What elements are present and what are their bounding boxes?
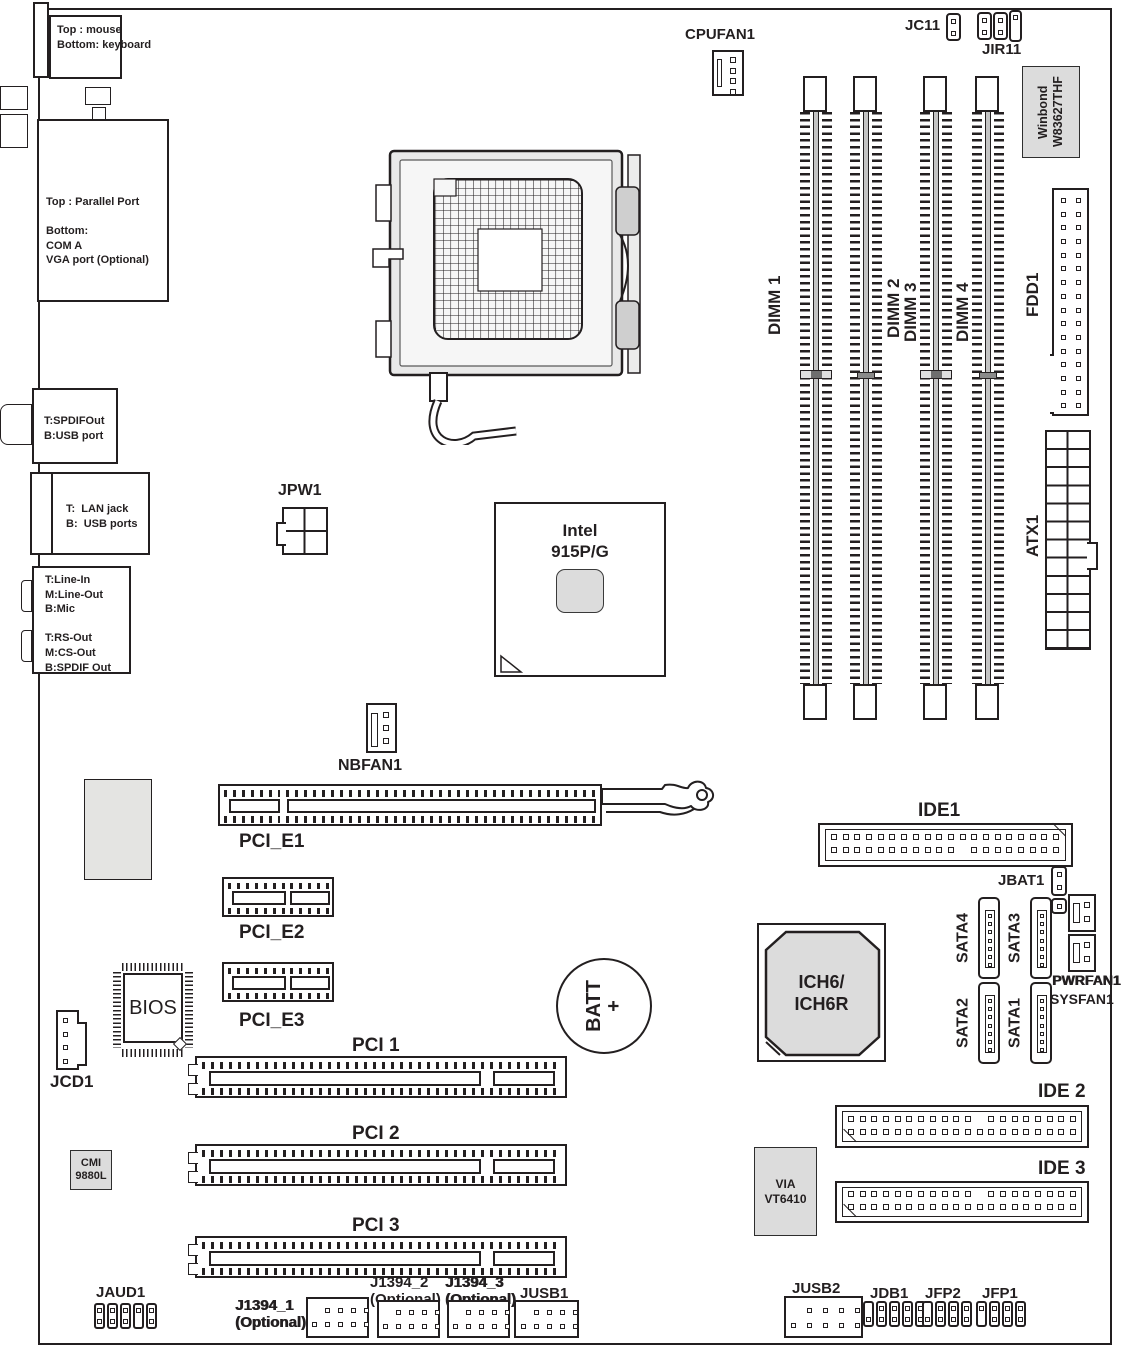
pci-slot-1 [195, 1056, 567, 1098]
pin [1030, 834, 1036, 840]
pin [995, 834, 1001, 840]
pin [992, 1317, 997, 1322]
mouse-keyboard-label-box: Top : mouse Bottom: keyboard [49, 15, 122, 79]
pwrfan1-connector [1068, 894, 1096, 932]
pin [1040, 939, 1044, 943]
audio-jack-shape [21, 630, 32, 662]
pin [951, 1306, 956, 1311]
pin [1061, 321, 1066, 326]
pin [948, 834, 954, 840]
spdif-usb-label-box: T:SPDIFOut B:USB port [32, 388, 118, 464]
serial-port-shape [0, 86, 28, 110]
pin [351, 1308, 356, 1313]
nbfan1-label: NBFAN1 [338, 757, 402, 776]
pin [730, 68, 736, 74]
pin [136, 1308, 141, 1313]
spdif-port-shape [0, 404, 32, 445]
pin [977, 1129, 983, 1135]
j1394-1-connector [306, 1297, 369, 1338]
pin [1030, 847, 1036, 853]
audio-jack-shape [21, 580, 32, 612]
pin [918, 1191, 924, 1197]
pin [848, 1191, 854, 1197]
pin [409, 1310, 414, 1315]
pin [1084, 902, 1090, 908]
pin [1000, 1129, 1006, 1135]
pin [1058, 1191, 1064, 1197]
pin [988, 1204, 994, 1210]
jumper-unit [120, 1303, 131, 1329]
pin [1047, 1204, 1053, 1210]
sata1-label: SATA1 [1006, 983, 1026, 1063]
pin [953, 1129, 959, 1135]
jpw1-label: JPW1 [278, 482, 322, 501]
pin [1040, 914, 1044, 918]
pin [123, 1308, 128, 1313]
pin [854, 834, 860, 840]
pin [1076, 212, 1081, 217]
northbridge-die [556, 569, 604, 613]
via-raid-chip: VIA VT6410 [754, 1147, 817, 1236]
pin [351, 1322, 356, 1327]
jpw1-connector [282, 507, 328, 555]
pin [1053, 847, 1059, 853]
pin [977, 1204, 983, 1210]
pin [848, 1116, 854, 1122]
pin [855, 1323, 860, 1328]
pin [521, 1324, 526, 1329]
cpu-socket [368, 143, 655, 445]
pin [971, 847, 977, 853]
pin [889, 834, 895, 840]
pin [149, 1308, 154, 1313]
pin [860, 1191, 866, 1197]
pin [854, 847, 860, 853]
pin [988, 1015, 992, 1019]
pin [1070, 1204, 1076, 1210]
pin [883, 1204, 889, 1210]
pin [123, 1319, 128, 1324]
pin [1076, 349, 1081, 354]
winbond-superio-chip: Winbond W83627THF [1022, 66, 1080, 158]
pin [871, 1204, 877, 1210]
pin [942, 1116, 948, 1122]
ide3-label: IDE 3 [1038, 1158, 1086, 1180]
pin [547, 1324, 552, 1329]
pin [383, 712, 389, 718]
cpufan1-connector [712, 50, 744, 96]
pin [1040, 955, 1044, 959]
pin [1076, 403, 1081, 408]
pin [843, 847, 849, 853]
pin [839, 1323, 844, 1328]
ide1-pins [831, 834, 1059, 853]
pin [1040, 922, 1044, 926]
pin [953, 1116, 959, 1122]
pin [364, 1322, 369, 1327]
pin [1035, 1116, 1041, 1122]
pin [1076, 376, 1081, 381]
pin [895, 1191, 901, 1197]
pin [906, 1116, 912, 1122]
pin [1076, 335, 1081, 340]
jbat1-label: JBAT1 [998, 872, 1044, 890]
pin [1023, 1204, 1029, 1210]
dimm1-label: DIMM 1 [764, 248, 786, 363]
ps2-stack-connector [33, 2, 49, 78]
pin [1070, 1116, 1076, 1122]
pin [1023, 1129, 1029, 1135]
jumper-unit [146, 1303, 157, 1329]
pin [1047, 1191, 1053, 1197]
pin [878, 847, 884, 853]
pin [860, 1204, 866, 1210]
pin [871, 1129, 877, 1135]
pin [479, 1310, 484, 1315]
pin [1023, 1191, 1029, 1197]
pin [1018, 1306, 1023, 1311]
jcd1-tab [77, 1022, 87, 1066]
pin [325, 1322, 330, 1327]
ide2-connector [835, 1105, 1089, 1148]
jumper-unit [94, 1303, 105, 1329]
pin [435, 1324, 440, 1329]
jumper-unit [863, 1301, 874, 1327]
pin [1040, 1015, 1044, 1019]
atx1-latch-tab [1087, 542, 1098, 570]
pin [1006, 847, 1012, 853]
pin [1076, 390, 1081, 395]
pin [1061, 403, 1066, 408]
pin [964, 1317, 969, 1322]
pin [1018, 834, 1024, 840]
pin [560, 1310, 565, 1315]
pin [942, 1129, 948, 1135]
dimm4-label: DIMM 4 [953, 256, 973, 368]
audio-label-box: T:Line-In M:Line-Out B:Mic T:RS-Out M:CS… [32, 566, 131, 674]
pin [901, 834, 907, 840]
pin [942, 1191, 948, 1197]
pin [988, 955, 992, 959]
pin [988, 1048, 992, 1052]
pin [396, 1324, 401, 1329]
pin [936, 834, 942, 840]
pin [791, 1323, 796, 1328]
pin [338, 1322, 343, 1327]
nbfan1-connector [366, 703, 397, 753]
pin [866, 1317, 871, 1322]
pcie1-label: PCI_E1 [239, 831, 304, 853]
pin [422, 1310, 427, 1315]
cpufan1-label: CPUFAN1 [685, 26, 755, 44]
pin [843, 834, 849, 840]
pin [807, 1308, 812, 1313]
jumper-unit [1015, 1301, 1026, 1327]
jumper-unit [1002, 1301, 1013, 1327]
pin [964, 1306, 969, 1311]
jbat1-pin3 [1051, 898, 1067, 914]
pin [383, 725, 389, 731]
pin [988, 1032, 992, 1036]
pin [1076, 239, 1081, 244]
pin [988, 939, 992, 943]
pin [730, 78, 736, 84]
pin [948, 847, 954, 853]
pin [860, 1129, 866, 1135]
jumper-unit [922, 1301, 933, 1327]
pin [435, 1310, 440, 1315]
pin [988, 963, 992, 967]
fan-key-tab [371, 713, 378, 747]
pin [1076, 294, 1081, 299]
pin [983, 834, 989, 840]
pin [149, 1319, 154, 1324]
pin [1000, 1204, 1006, 1210]
pin [1023, 1116, 1029, 1122]
jc11-label: JC11 [905, 17, 940, 35]
pin [1018, 847, 1024, 853]
fan-key-tab [717, 59, 722, 87]
pin [312, 1322, 317, 1327]
pin [925, 1317, 930, 1322]
pin [1076, 308, 1081, 313]
pin [338, 1308, 343, 1313]
jcd1-label: JCD1 [50, 1072, 93, 1092]
pin [988, 1040, 992, 1044]
jc11-jumper [946, 13, 961, 41]
pin [1084, 916, 1090, 922]
jumper-unit [133, 1303, 144, 1329]
pin [1040, 1024, 1044, 1028]
pin [1040, 930, 1044, 934]
pin [1061, 362, 1066, 367]
pin [988, 999, 992, 1003]
pin [1061, 308, 1066, 313]
cpufan1-pins [730, 57, 736, 95]
pin [1012, 1204, 1018, 1210]
pin [839, 1308, 844, 1313]
jir11-label: JIR11 [982, 41, 1021, 59]
motherboard-layout-diagram: Top : mouse Bottom: keyboard Top : Paral… [0, 0, 1125, 1351]
pin [1058, 1204, 1064, 1210]
dimm-slot-2 [850, 76, 882, 720]
pin [1047, 1129, 1053, 1135]
pin [895, 1204, 901, 1210]
pin [479, 1324, 484, 1329]
pin [560, 1324, 565, 1329]
audio-label: T:Line-In M:Line-Out B:Mic T:RS-Out M:CS… [34, 568, 129, 675]
pin [913, 847, 919, 853]
atx1-power-connector [1045, 430, 1091, 650]
bios-chip: BIOS [113, 963, 193, 1057]
pin [1040, 999, 1044, 1003]
ide1-connector [818, 823, 1073, 867]
pin [1035, 1129, 1041, 1135]
pin [960, 834, 966, 840]
pin [906, 1204, 912, 1210]
lan-port-shape [30, 472, 53, 555]
pin [883, 1191, 889, 1197]
pcie2-label: PCI_E2 [239, 922, 304, 944]
pin [918, 1204, 924, 1210]
pin [466, 1324, 471, 1329]
jir11-jumper-3 [1009, 10, 1022, 42]
pin [953, 1204, 959, 1210]
jusb2-connector [784, 1296, 863, 1338]
pin [860, 1116, 866, 1122]
pcie-x1-slot-2 [222, 877, 334, 917]
pin [1040, 963, 1044, 967]
pin [988, 947, 992, 951]
pin [988, 1129, 994, 1135]
pin [925, 847, 931, 853]
pin [1076, 253, 1081, 258]
pin [63, 1045, 68, 1050]
pin [1061, 212, 1066, 217]
pin [878, 834, 884, 840]
pin [1040, 1007, 1044, 1011]
pin [1012, 1129, 1018, 1135]
pcie-x16-slot [218, 784, 602, 826]
sata1-connector [1030, 982, 1052, 1064]
southbridge-label: ICH6/ ICH6R [759, 971, 884, 1015]
pin [97, 1308, 102, 1313]
pin [879, 1306, 884, 1311]
pin [1076, 225, 1081, 230]
pin [930, 1191, 936, 1197]
ide2-label: IDE 2 [1038, 1081, 1086, 1103]
pin [1076, 362, 1081, 367]
pin [965, 1204, 971, 1210]
pin [1061, 239, 1066, 244]
pin [63, 1059, 68, 1064]
pin [1061, 266, 1066, 271]
battery-label: BATT + [584, 980, 624, 1032]
cmos-battery: BATT + [556, 958, 652, 1054]
pin [906, 1129, 912, 1135]
pin [63, 1018, 68, 1023]
pwrfan1-label: PWRFAN1 [1052, 972, 1120, 989]
j1394-1-label: J1394_1 (Optional) [235, 1297, 306, 1331]
pin [1041, 834, 1047, 840]
parallel-com-vga-label-box: Top : Parallel Port Bottom: COM A VGA po… [37, 119, 169, 302]
pin [1058, 1116, 1064, 1122]
pin [1012, 1116, 1018, 1122]
pin [364, 1308, 369, 1313]
sata4-connector [978, 897, 1000, 979]
pin [883, 1116, 889, 1122]
pin [807, 1323, 812, 1328]
northbridge-label: Intel 915P/G [496, 520, 664, 562]
jfp1-header [976, 1301, 1026, 1327]
pin [988, 1116, 994, 1122]
ide1-label: IDE1 [918, 800, 960, 822]
pin [422, 1324, 427, 1329]
j1394-2-connector [377, 1300, 440, 1338]
jcd1-pins [63, 1018, 68, 1064]
ide3-connector [835, 1181, 1089, 1223]
pin [1005, 1306, 1010, 1311]
pin [965, 1191, 971, 1197]
pci2-label: PCI 2 [352, 1123, 400, 1145]
pin [1053, 834, 1059, 840]
pin [534, 1310, 539, 1315]
pin [1040, 947, 1044, 951]
pin [505, 1324, 510, 1329]
jir11-jumper-1 [977, 12, 992, 40]
pin [889, 847, 895, 853]
pin [573, 1324, 578, 1329]
sysfan1-label: SYSFAN1 [1050, 991, 1114, 1008]
pin [1061, 280, 1066, 285]
parallel-com-vga-label: Top : Parallel Port Bottom: COM A VGA po… [39, 121, 167, 268]
pin [730, 89, 736, 95]
pci3-label: PCI 3 [352, 1215, 400, 1237]
pin [892, 1306, 897, 1311]
pin [831, 847, 837, 853]
vga-port-shape [0, 114, 28, 148]
pin [396, 1310, 401, 1315]
dimm-slot-1 [800, 76, 832, 720]
pin [1076, 198, 1081, 203]
pin [895, 1116, 901, 1122]
pin [855, 1308, 860, 1313]
pin [492, 1324, 497, 1329]
pin [1061, 349, 1066, 354]
pin [1061, 225, 1066, 230]
jumper-unit [961, 1301, 972, 1327]
pin [988, 914, 992, 918]
pci-slot-2 [195, 1144, 567, 1186]
cmi-audio-chip: CMI 9880L [70, 1150, 112, 1190]
pin [965, 1129, 971, 1135]
jumper-unit [989, 1301, 1000, 1327]
jpw1-tab [276, 522, 286, 546]
pin [883, 1129, 889, 1135]
sata4-label: SATA4 [954, 898, 974, 978]
jusb1-connector [514, 1300, 579, 1338]
pin [1005, 1317, 1010, 1322]
jumper-unit [107, 1303, 118, 1329]
pin [930, 1129, 936, 1135]
pin [1012, 1191, 1018, 1197]
pin [110, 1319, 115, 1324]
jumper-unit [976, 1301, 987, 1327]
jir11-jumper-2 [993, 12, 1008, 40]
fdd1-connector [1052, 188, 1089, 416]
pin [453, 1324, 458, 1329]
pin [988, 1191, 994, 1197]
pin [110, 1308, 115, 1313]
pin [492, 1310, 497, 1315]
pin [1035, 1204, 1041, 1210]
dimm-slot-3 [920, 76, 952, 720]
pin [97, 1319, 102, 1324]
pin [1061, 376, 1066, 381]
pin [866, 834, 872, 840]
pin [1006, 834, 1012, 840]
spdif-usb-label: T:SPDIFOut B:USB port [34, 390, 116, 443]
pin [823, 1323, 828, 1328]
pin [1061, 335, 1066, 340]
pin [1040, 1040, 1044, 1044]
fdd1-notch [1050, 354, 1054, 414]
pin [1035, 1191, 1041, 1197]
sata3-label: SATA3 [1006, 898, 1026, 978]
atx1-label: ATX1 [1022, 502, 1044, 570]
fdd1-pins [1061, 198, 1081, 408]
sata2-connector [978, 982, 1000, 1064]
